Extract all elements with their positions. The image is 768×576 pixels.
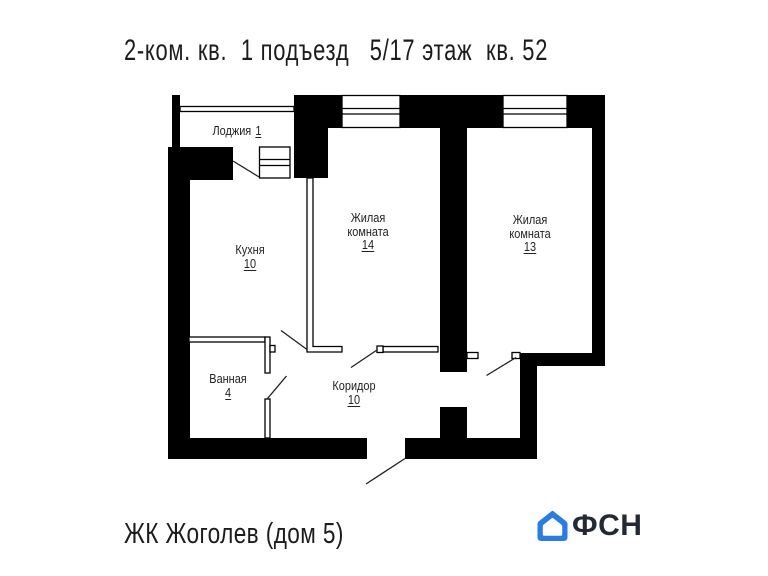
partition-bath-right-lower: [265, 399, 270, 438]
loggia-glazing: [180, 107, 294, 112]
wall-center-stub: [440, 407, 467, 439]
wall-room13-bottom: [520, 353, 605, 366]
window-room14: [342, 96, 400, 128]
wall-right: [592, 128, 605, 355]
fsn-logo: ФСН: [536, 509, 642, 543]
balcony-door-window-unit: [260, 147, 291, 178]
wall-top-c: [567, 95, 605, 128]
room-label-living14: Жилая комната 14: [347, 211, 388, 252]
door-bath: [268, 376, 287, 399]
room-name: Кухня: [235, 243, 264, 257]
doorframe-bath: [270, 346, 275, 353]
project-name: ЖК Жоголев (дом 5): [124, 518, 344, 551]
wall-left: [168, 180, 190, 440]
wall-top-b: [400, 95, 503, 128]
door-kitchen: [281, 331, 307, 350]
doorframe-room13-left: [467, 353, 478, 359]
room-name: комната: [509, 227, 550, 241]
room-label-living13: Жилая комната 13: [509, 213, 550, 254]
room-name: Жилая: [347, 211, 388, 225]
wall-top-a: [294, 95, 342, 128]
room-name: Лоджия: [213, 123, 252, 138]
room-area: 1: [255, 125, 261, 138]
room-area: 13: [524, 241, 536, 254]
room-label-kitchen: Кухня 10: [235, 243, 264, 271]
pier-loggia: [294, 128, 328, 178]
doorframe-room14: [377, 346, 383, 353]
room-area: 10: [348, 394, 360, 407]
room-name: комната: [347, 225, 388, 239]
house-logo-icon: [536, 509, 569, 543]
room-label-bath: Ванная 4: [209, 372, 246, 400]
room-area: 14: [362, 239, 374, 252]
partition-kitchen: [307, 178, 342, 352]
wall-center-column: [440, 126, 467, 372]
room-name: Ванная: [209, 372, 246, 386]
window-room13: [503, 96, 567, 128]
room-area: 4: [225, 387, 231, 400]
wall-corner-block: [168, 147, 233, 180]
floor-plan: [0, 0, 768, 576]
logo-text: ФСН: [572, 509, 642, 543]
door-room14: [351, 350, 377, 368]
loggia-left-wall: [172, 95, 180, 147]
partition-bath-top: [189, 337, 265, 342]
door-entrance: [366, 459, 405, 485]
room-label-loggia: Лоджия1: [213, 124, 262, 138]
wall-bottom-left: [168, 438, 367, 459]
door-room13: [487, 358, 517, 376]
partition-room14: [383, 347, 438, 353]
room-name: Жилая: [509, 213, 550, 227]
partition-bath-right-upper: [265, 337, 270, 373]
room-area: 10: [244, 258, 256, 271]
walls: [168, 95, 605, 459]
door-loggia: [233, 161, 259, 177]
wall-right-step: [520, 366, 537, 438]
wall-bottom-right: [405, 438, 537, 459]
room-name: Коридор: [332, 379, 375, 393]
room-label-corridor: Коридор 10: [332, 379, 375, 407]
